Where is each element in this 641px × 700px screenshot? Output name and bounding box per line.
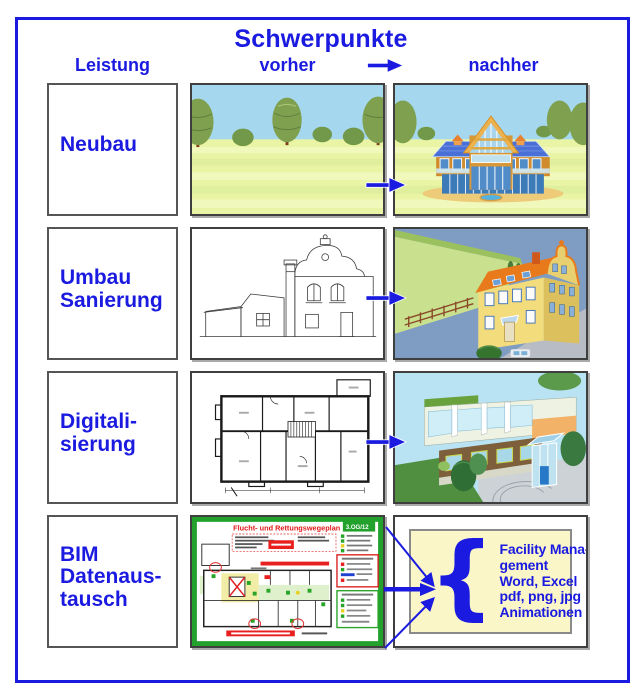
new-solar-house-illustration [395, 85, 586, 214]
bim-output-line: Animationen [500, 605, 589, 621]
service-label-box-umbau: Umbau Sanierung [47, 227, 178, 360]
service-label-box-bim: BIM Datenaus- tausch [47, 515, 178, 648]
empty-meadow-illustration [192, 85, 383, 214]
before-image-digitalisierung [190, 371, 385, 504]
floor-plan-scan-illustration [192, 373, 383, 502]
row-bim-datenaustausch: BIM Datenaus- tausch Flucht- und Rettung… [0, 515, 641, 648]
before-after-arrow-icon [365, 433, 407, 451]
after-image-neubau [393, 83, 588, 216]
column-header-nachher: nachher [393, 55, 588, 76]
row-umbau-sanierung: Umbau Sanierung [0, 227, 641, 360]
service-label: Umbau Sanierung [60, 267, 163, 312]
before-after-arrow-icon [365, 289, 407, 307]
plan-title: Flucht- und Rettungswegeplan [233, 524, 340, 533]
after-image-digitalisierung [393, 371, 588, 504]
service-label-box-digitalisierung: Digitali- sierung [47, 371, 178, 504]
bim-output-list: Facility Mana- gement Word, Excel pdf, p… [500, 542, 589, 620]
bim-output-panel: { Facility Mana- gement Word, Excel pdf,… [409, 529, 572, 634]
after-image-umbau [393, 227, 588, 360]
plan-floor-badge: 3.OG/12 [346, 525, 370, 531]
bim-output-line: gement [500, 558, 589, 574]
row-neubau: Neubau [0, 83, 641, 216]
row-digitalisierung: Digitali- sierung [0, 371, 641, 504]
service-label: BIM Datenaus- tausch [60, 544, 162, 611]
column-header-vorher: vorher [190, 55, 385, 76]
renovated-building-3d-illustration [395, 229, 586, 358]
bim-output-line: Word, Excel [500, 574, 589, 590]
before-image-umbau [190, 227, 385, 360]
escape-route-plan-illustration: Flucht- und Rettungswegeplan 3.OG/12 [192, 517, 383, 646]
service-label: Neubau [60, 134, 137, 156]
slide-canvas: Schwerpunkte Leistung vorher nachher Neu… [0, 0, 641, 700]
column-header-leistung: Leistung [47, 55, 178, 76]
facade-line-drawing-illustration [192, 229, 383, 358]
bim-output-line: pdf, png, jpg [500, 589, 589, 605]
service-label-box-neubau: Neubau [47, 83, 178, 216]
before-image-neubau [190, 83, 385, 216]
service-label: Digitali- sierung [60, 411, 137, 456]
left-curly-brace-icon: { [429, 535, 495, 620]
bim-output-line: Facility Mana- [500, 542, 589, 558]
before-after-arrow-icon [365, 176, 407, 194]
digital-3d-model-illustration [395, 373, 586, 502]
before-image-bim: Flucht- und Rettungswegeplan 3.OG/12 [190, 515, 385, 648]
page-title: Schwerpunkte [15, 25, 627, 54]
after-image-bim: { Facility Mana- gement Word, Excel pdf,… [393, 515, 588, 648]
